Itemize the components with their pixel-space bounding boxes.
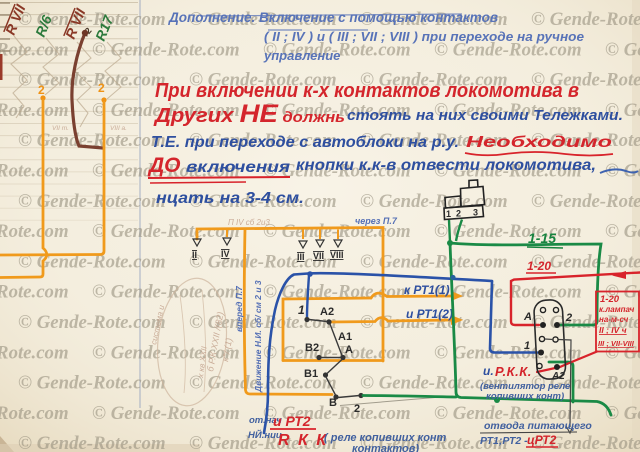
svg-text:А: А <box>523 311 532 323</box>
svg-text:и РТ2: и РТ2 <box>273 413 311 429</box>
svg-text:1-15: 1-15 <box>528 230 556 246</box>
svg-text:© Gende-Rote.com: © Gende-Rote.com <box>0 282 69 303</box>
svg-text:Р.К.К.: Р.К.К. <box>495 364 532 379</box>
svg-text:B2: B2 <box>305 342 319 354</box>
svg-text:включения: включения <box>186 159 291 176</box>
svg-text:1-20: 1-20 <box>527 259 551 273</box>
svg-text:НЙ.ниц: НЙ.ниц <box>248 429 282 441</box>
svg-text:© Gende-Rote.com: © Gende-Rote.com <box>434 282 582 303</box>
svg-text:II ; IV ч: II ; IV ч <box>599 325 627 335</box>
svg-text:и РТ1(2): и РТ1(2) <box>406 307 453 321</box>
svg-text:1: 1 <box>446 209 451 219</box>
svg-text:2: 2 <box>98 81 105 95</box>
svg-text:Т.Е. при переходе с автоблоки: Т.Е. при переходе с автоблоки на р.у. <box>151 134 459 151</box>
svg-text:© Gende-Rote.com: © Gende-Rote.com <box>605 39 640 60</box>
svg-text:РТ1;РТ2 -: РТ1;РТ2 - <box>480 435 528 447</box>
svg-text:2: 2 <box>456 209 461 219</box>
svg-text:VIII: VIII <box>330 250 344 260</box>
svg-text:Дополнение. Включение с помощь: Дополнение. Включение с помощью контакто… <box>168 10 498 25</box>
svg-text:VII т.: VII т. <box>52 125 69 132</box>
svg-text:3: 3 <box>473 208 478 218</box>
svg-text:на-м-сч: на-м-сч <box>599 315 629 324</box>
svg-text:1-20: 1-20 <box>600 294 620 305</box>
svg-text:© Gende-Rote.com: © Gende-Rote.com <box>605 221 640 242</box>
svg-text:© Gende-Rote.com: © Gende-Rote.com <box>18 312 166 333</box>
svg-text:A1: A1 <box>338 331 352 343</box>
svg-text:2: 2 <box>354 403 360 415</box>
svg-text:© Gende-Rote.com: © Gende-Rote.com <box>92 403 240 424</box>
svg-text:R К К: R К К <box>278 432 328 449</box>
svg-text:© Gende-Rote.com: © Gende-Rote.com <box>18 191 166 212</box>
svg-text:© Gende-Rote.com: © Gende-Rote.com <box>360 191 508 212</box>
svg-text:© Gende-Rote.com: © Gende-Rote.com <box>18 433 166 452</box>
svg-text:II: II <box>192 250 197 260</box>
svg-text:© Gende-Rote.com: © Gende-Rote.com <box>0 39 69 60</box>
svg-text:1: 1 <box>298 303 305 317</box>
svg-text:цРТ2: цРТ2 <box>527 433 557 447</box>
svg-text:и.: и. <box>483 364 494 378</box>
svg-text:через П.7: через П.7 <box>355 216 398 226</box>
svg-text:© Gende-Rote.com: © Gende-Rote.com <box>0 221 69 242</box>
svg-text:© Gende-Rote.com: © Gende-Rote.com <box>0 342 69 363</box>
svg-text:© Gende-Rote.com: © Gende-Rote.com <box>531 9 640 30</box>
svg-text:IV: IV <box>221 249 230 259</box>
svg-text:© Gende-Rote.com: © Gende-Rote.com <box>92 221 240 242</box>
svg-text:кнопки к.к-в отвести локомотив: кнопки к.к-в отвести локомотива, <box>296 157 596 174</box>
svg-text:управление: управление <box>263 48 340 63</box>
svg-text:( II ; IV ) и ( III ; VII ; VI: ( II ; IV ) и ( III ; VII ; VIII ) при п… <box>264 29 584 44</box>
svg-text:к.лампач: к.лампач <box>599 305 635 314</box>
svg-text:1: 1 <box>524 340 530 352</box>
svg-text:вперед П.7: вперед П.7 <box>234 285 244 332</box>
svg-text:Необходимо: Необходимо <box>466 134 612 151</box>
svg-text:П IV сб 2и3: П IV сб 2и3 <box>228 218 270 227</box>
svg-text:© Gende-Rote.com: © Gende-Rote.com <box>0 100 69 121</box>
svg-text:B1: B1 <box>304 368 318 380</box>
svg-text:A2: A2 <box>320 306 334 318</box>
svg-text:отвода питающего: отвода питающего <box>484 420 592 432</box>
svg-text:При включении к-х контактов ло: При включении к-х контактов локомотива в <box>155 80 579 102</box>
svg-text:нцать на 3-4 см.: нцать на 3-4 см. <box>156 190 304 207</box>
svg-text:к РТ1(1): к РТ1(1) <box>404 283 450 297</box>
svg-text:A: A <box>345 344 353 356</box>
svg-text:Движение Н.И. сб/ см 2 и 3: Движение Н.И. сб/ см 2 и 3 <box>253 280 263 393</box>
svg-text:2: 2 <box>38 83 45 97</box>
svg-text:VII: VII <box>313 251 324 261</box>
svg-text:© Gende-Rote.com: © Gende-Rote.com <box>0 403 69 424</box>
svg-text:копивших конт): копивших конт) <box>486 391 564 402</box>
svg-text:© Gende-Rote.com: © Gende-Rote.com <box>0 161 69 182</box>
svg-text:© Gende-Rote.com: © Gende-Rote.com <box>18 373 166 394</box>
svg-text:VIII а.: VIII а. <box>110 125 127 132</box>
svg-text:ДО: ДО <box>147 154 181 177</box>
svg-text:© Gende-Rote.com: © Gende-Rote.com <box>531 191 640 212</box>
svg-text:контактов): контактов) <box>352 443 419 452</box>
svg-text:стоять на них своими Тележками: стоять на них своими Тележками. <box>347 107 623 124</box>
svg-text:2: 2 <box>565 312 572 324</box>
svg-text:B: B <box>329 397 337 409</box>
svg-text:III: III <box>297 252 305 262</box>
svg-text:III ; VII-VIII: III ; VII-VIII <box>598 339 635 348</box>
